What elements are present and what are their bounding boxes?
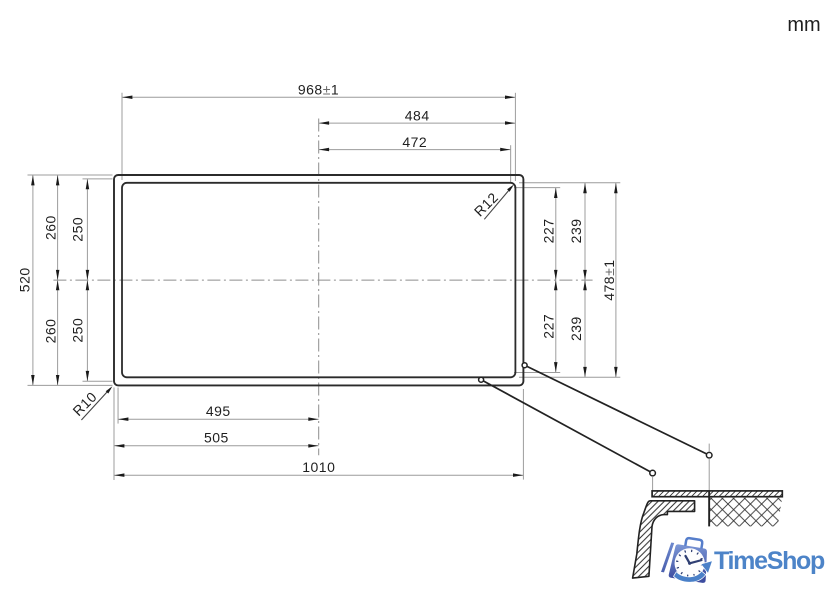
svg-text:520: 520: [17, 267, 33, 292]
svg-text:968±1: 968±1: [298, 82, 339, 98]
svg-text:260: 260: [43, 319, 59, 344]
svg-text:1010: 1010: [302, 459, 335, 475]
svg-text:495: 495: [206, 403, 231, 419]
svg-text:472: 472: [402, 134, 427, 150]
svg-text:239: 239: [568, 316, 584, 341]
svg-text:227: 227: [540, 314, 556, 339]
svg-text:mm: mm: [787, 14, 820, 36]
svg-text:239: 239: [568, 218, 584, 243]
svg-text:TimeShop: TimeShop: [714, 547, 825, 575]
svg-text:260: 260: [43, 215, 59, 240]
svg-text:250: 250: [69, 318, 85, 343]
svg-text:227: 227: [540, 218, 556, 243]
svg-text:484: 484: [405, 108, 430, 124]
svg-text:505: 505: [204, 430, 229, 446]
svg-text:478±1: 478±1: [601, 259, 617, 300]
svg-text:250: 250: [69, 217, 85, 242]
